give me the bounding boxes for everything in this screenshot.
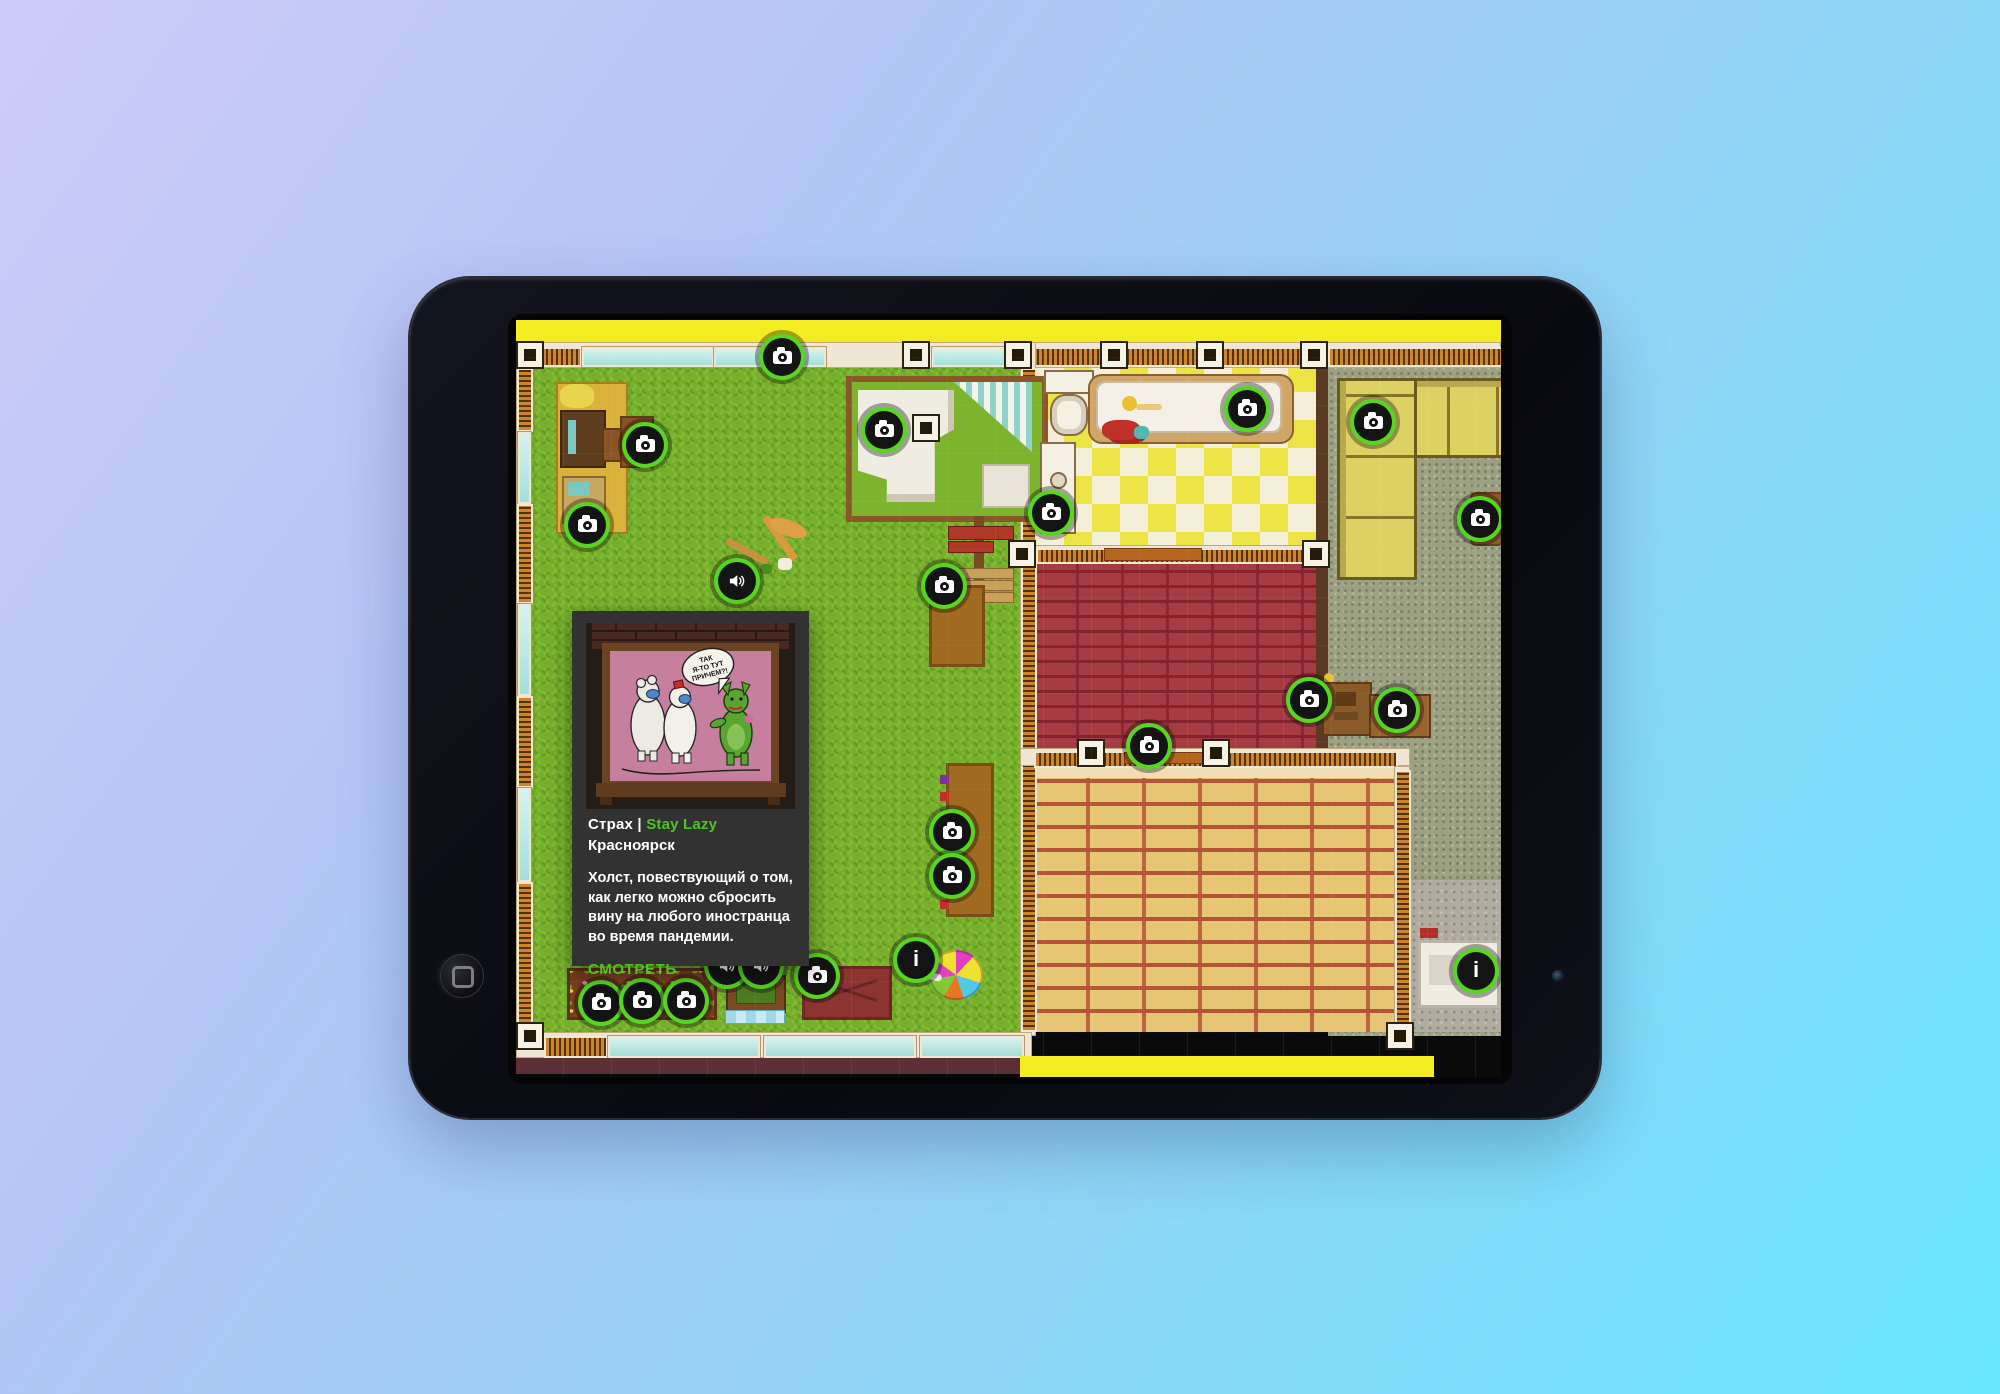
camera-marker-brick-room-wall[interactable] — [1130, 727, 1168, 765]
camera-marker-dresser-left[interactable] — [1290, 681, 1328, 719]
camera-marker-table-top[interactable] — [925, 567, 963, 605]
camera-marker-desk[interactable] — [568, 506, 606, 544]
camera-icon — [636, 439, 655, 452]
camera-icon — [1140, 740, 1159, 753]
popup-artist-link[interactable]: Stay Lazy — [646, 816, 717, 833]
camera-marker-armchair[interactable] — [1461, 500, 1499, 538]
popup-city: Красноярск — [588, 836, 794, 857]
front-camera — [1552, 970, 1564, 982]
tablet-device: ii — [410, 278, 1600, 1118]
camera-icon — [1364, 416, 1383, 429]
camera-marker-bathroom-sink[interactable] — [1032, 494, 1070, 532]
camera-marker-flower-bed-2[interactable] — [623, 982, 661, 1020]
page: { "background": {"gradient_from": "#cdcc… — [0, 0, 2000, 1394]
info-icon: i — [1473, 959, 1479, 981]
camera-icon — [633, 995, 652, 1008]
camera-icon — [578, 519, 597, 532]
artwork-image: ТАК Я-ТО ТУТ ПРИЧЕМ?! — [586, 623, 795, 809]
camera-marker-desk-table[interactable] — [626, 426, 664, 464]
popup-separator: | — [637, 816, 641, 833]
camera-marker-flower-bed-1[interactable] — [582, 984, 620, 1022]
camera-icon — [935, 580, 954, 593]
camera-icon — [677, 995, 696, 1008]
camera-icon — [808, 970, 827, 983]
camera-marker-flower-bed-3[interactable] — [667, 982, 705, 1020]
camera-marker-bedroom[interactable] — [865, 411, 903, 449]
tablet-screen: ii — [508, 314, 1512, 1084]
camera-icon — [1471, 513, 1490, 526]
camera-icon — [943, 870, 962, 883]
popup-cta-link[interactable]: СМОТРЕТЬ — [588, 960, 677, 981]
camera-icon — [592, 997, 611, 1010]
camera-icon — [1388, 704, 1407, 717]
camera-marker-long-table-lower[interactable] — [933, 857, 971, 895]
camera-marker-dresser-right[interactable] — [1378, 691, 1416, 729]
camera-icon — [1300, 694, 1319, 707]
exhibition-map[interactable]: ii — [516, 320, 1501, 1077]
popup-title: Страх — [588, 816, 633, 833]
artwork-photo: ТАК Я-ТО ТУТ ПРИЧЕМ?! — [586, 623, 795, 809]
popup-text-block: Страх | Stay Lazy Красноярск Холст, пове… — [588, 815, 794, 981]
camera-icon — [1238, 403, 1257, 416]
info-marker-lawn-info[interactable]: i — [897, 941, 935, 979]
artwork-popup: ТАК Я-ТО ТУТ ПРИЧЕМ?! Страх | Stay Lazy … — [572, 611, 809, 966]
camera-icon — [773, 351, 792, 364]
camera-marker-top-wall[interactable] — [763, 338, 801, 376]
camera-icon — [943, 826, 962, 839]
camera-marker-bathtub[interactable] — [1228, 390, 1266, 428]
popup-title-row: Страх | Stay Lazy — [588, 815, 794, 836]
info-marker-corner-info[interactable]: i — [1457, 952, 1495, 990]
speaker-marker-lawn[interactable] — [718, 562, 756, 600]
speaker-icon — [727, 571, 747, 591]
home-button[interactable] — [440, 954, 484, 998]
camera-marker-couch[interactable] — [1354, 403, 1392, 441]
info-icon: i — [913, 948, 919, 970]
popup-description: Холст, повествующий о том, как легко мож… — [588, 869, 794, 947]
camera-marker-long-table-upper[interactable] — [933, 813, 971, 851]
camera-icon — [875, 424, 894, 437]
camera-icon — [1042, 507, 1061, 520]
